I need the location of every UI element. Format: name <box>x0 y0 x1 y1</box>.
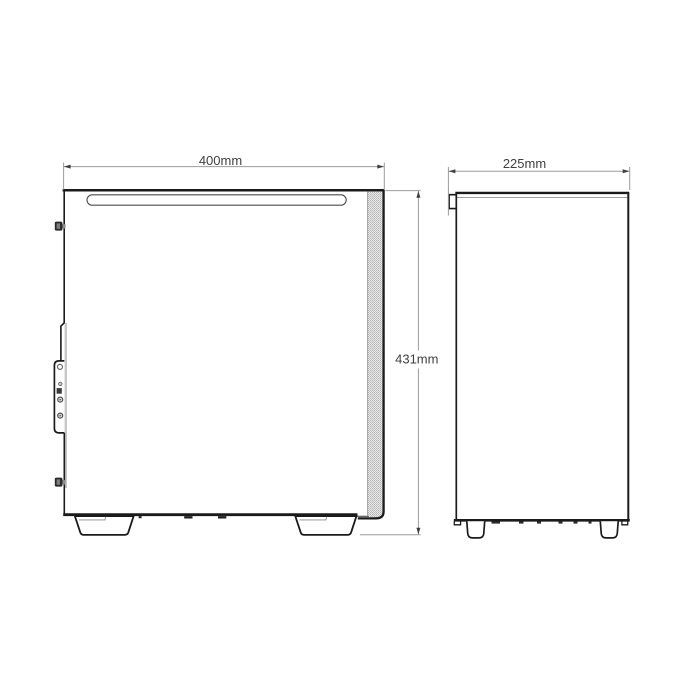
svg-text:431mm: 431mm <box>395 352 438 367</box>
svg-text:400mm: 400mm <box>199 153 242 168</box>
svg-text:225mm: 225mm <box>503 156 546 171</box>
